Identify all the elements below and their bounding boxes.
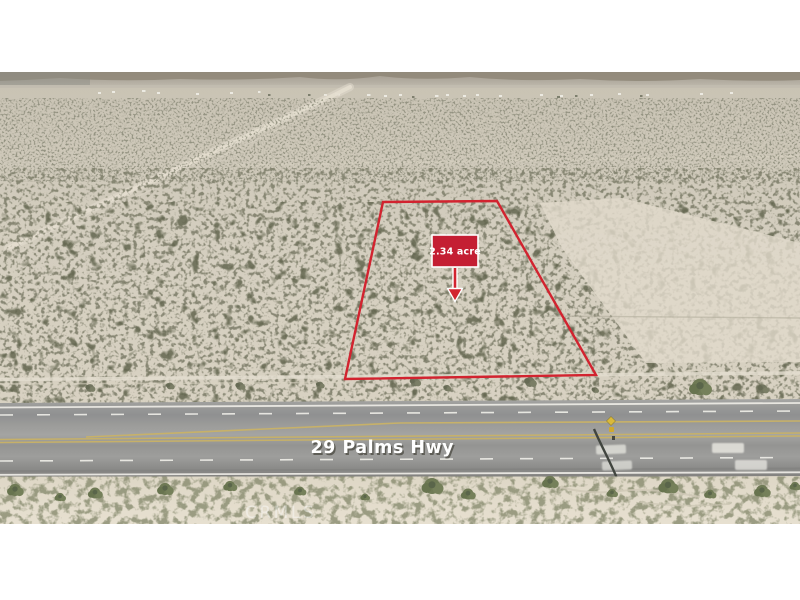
watermark: CRMLS [245,503,316,523]
foreground-texture [0,477,800,525]
horizon-haze-line [0,85,800,88]
aerial-photo: 29 Palms Hwy 29 Palms Hwy 2.34 acre CRML… [0,72,800,524]
signal-head-icon [609,427,614,432]
signal-box [612,436,615,440]
foreground [0,476,800,524]
area-label-text: 2.34 acre [429,247,481,258]
highway-label-text: 29 Palms Hwy [311,438,455,458]
listing-photo-page: 29 Palms Hwy 29 Palms Hwy 2.34 acre CRML… [0,0,800,600]
highway-label: 29 Palms Hwy 29 Palms Hwy [311,438,456,460]
horizon-left-shade [0,72,90,85]
